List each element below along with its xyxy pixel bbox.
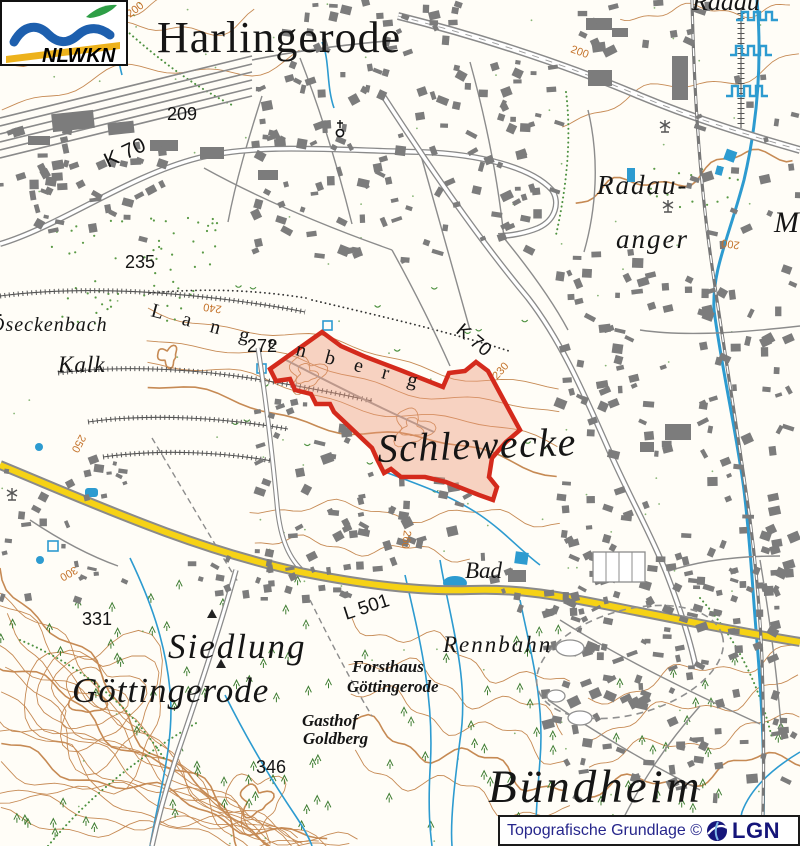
building	[584, 313, 596, 323]
building	[286, 407, 295, 415]
building	[542, 718, 555, 730]
topographic-map: Harlingerode Radau- anger Langenberg Öse…	[0, 0, 800, 846]
label-forsthaus-1: Forsthaus	[351, 657, 424, 676]
building	[513, 79, 521, 83]
building	[389, 557, 397, 567]
building	[608, 3, 619, 10]
building	[587, 429, 595, 436]
building	[391, 198, 399, 203]
building	[423, 239, 431, 247]
building	[638, 418, 647, 425]
label-kalk: Kalk	[57, 352, 105, 377]
label-harlingerode: Harlingerode	[157, 13, 401, 62]
building	[34, 204, 41, 213]
nlwkn-logo-text: NLWKN	[42, 45, 116, 64]
label-buendheim: Bündheim	[488, 761, 703, 813]
building	[65, 479, 75, 489]
building	[781, 264, 793, 275]
building	[770, 620, 781, 630]
building	[785, 569, 794, 578]
building	[442, 35, 450, 45]
building	[490, 62, 500, 71]
building	[261, 100, 273, 111]
building	[138, 236, 148, 243]
building	[440, 123, 448, 127]
building	[40, 519, 47, 527]
spot-height-209: 209	[167, 104, 197, 124]
building	[631, 289, 643, 295]
building	[624, 335, 634, 342]
building	[349, 530, 358, 538]
building	[562, 377, 572, 383]
building	[615, 293, 620, 298]
building	[562, 481, 571, 485]
building	[591, 251, 601, 257]
building	[746, 774, 758, 784]
building	[479, 89, 488, 97]
building	[730, 628, 740, 634]
building	[663, 304, 674, 313]
building	[654, 451, 659, 457]
building	[733, 618, 741, 625]
building	[306, 231, 317, 238]
building	[586, 496, 595, 503]
building	[337, 244, 350, 257]
building	[697, 577, 705, 585]
building	[365, 85, 371, 93]
building	[562, 505, 570, 513]
label-partial-m: M	[773, 206, 800, 239]
building	[642, 501, 650, 509]
building	[581, 616, 588, 623]
building	[573, 278, 583, 289]
building	[158, 146, 167, 156]
building	[724, 495, 732, 502]
building	[739, 527, 747, 534]
building	[431, 249, 443, 256]
building	[573, 256, 582, 260]
building	[726, 473, 732, 478]
building	[535, 113, 542, 118]
building	[739, 581, 746, 588]
building	[21, 522, 31, 527]
building	[563, 592, 569, 601]
building	[73, 595, 82, 604]
building	[63, 160, 70, 168]
building	[740, 740, 749, 744]
building	[733, 464, 744, 470]
building	[403, 49, 414, 57]
building	[616, 365, 624, 371]
building	[597, 401, 609, 413]
spot-height-272: 272	[247, 336, 277, 356]
building	[562, 680, 571, 688]
building	[255, 577, 261, 584]
building	[280, 225, 293, 236]
building	[348, 93, 361, 106]
building	[356, 561, 364, 569]
building	[344, 437, 351, 444]
building	[357, 528, 370, 537]
building	[415, 112, 425, 121]
building	[544, 590, 555, 597]
building	[314, 440, 326, 447]
building	[318, 585, 325, 592]
building	[782, 559, 795, 570]
contour-label-200-e: 200	[721, 236, 741, 250]
building	[510, 117, 516, 122]
building	[795, 192, 800, 198]
building	[663, 634, 672, 639]
building	[451, 7, 459, 15]
building	[263, 584, 272, 593]
building	[714, 728, 721, 734]
building	[614, 355, 624, 365]
parking-area	[593, 552, 645, 582]
building	[158, 180, 166, 189]
building	[684, 570, 693, 576]
building	[83, 469, 91, 477]
contour-label-300: 300	[58, 563, 80, 583]
building	[357, 178, 370, 189]
building	[774, 606, 779, 610]
label-schlewecke: Schlewecke	[377, 419, 578, 471]
building	[275, 215, 287, 225]
building	[634, 674, 642, 684]
spot-height-346: 346	[256, 757, 286, 777]
building	[775, 307, 781, 317]
building	[254, 238, 263, 247]
building	[788, 281, 797, 288]
building	[382, 68, 390, 77]
contour-label-240: 240	[203, 300, 223, 314]
building	[515, 149, 527, 160]
building	[752, 566, 761, 575]
building	[320, 452, 334, 465]
building	[88, 223, 98, 233]
building	[429, 20, 438, 26]
label-road-k70-east: K 70	[452, 320, 495, 361]
building	[31, 505, 41, 514]
building	[0, 593, 6, 602]
building	[614, 486, 626, 496]
building	[653, 0, 663, 6]
nlwkn-blue-wave	[14, 27, 110, 42]
building	[352, 247, 359, 253]
building	[631, 383, 638, 389]
building	[577, 585, 586, 592]
building	[787, 531, 800, 544]
building	[520, 123, 531, 132]
building	[263, 188, 271, 196]
building	[730, 595, 738, 603]
building	[506, 123, 517, 135]
building	[791, 112, 800, 118]
building	[675, 645, 685, 652]
building	[574, 298, 583, 305]
building	[273, 432, 280, 439]
building	[523, 245, 536, 256]
building	[106, 471, 111, 475]
building	[284, 74, 294, 83]
building	[452, 101, 461, 110]
building	[576, 360, 584, 368]
building	[314, 253, 325, 259]
label-radau-anger-2: anger	[616, 224, 689, 254]
label-oeseckenbach: Öseckenbach	[0, 313, 108, 336]
building	[740, 223, 753, 234]
building	[694, 124, 707, 132]
building	[124, 215, 131, 220]
building	[295, 524, 304, 531]
building	[761, 347, 768, 357]
building	[764, 586, 774, 596]
building	[586, 525, 593, 530]
building	[57, 183, 68, 190]
building	[623, 273, 632, 283]
building	[656, 556, 666, 562]
building	[567, 294, 574, 300]
building	[38, 153, 48, 157]
building	[340, 72, 345, 77]
building	[5, 538, 13, 543]
building	[423, 5, 430, 13]
building	[681, 556, 689, 566]
building	[515, 187, 521, 191]
building	[395, 145, 407, 156]
building	[436, 95, 449, 106]
building	[756, 582, 764, 588]
building	[588, 687, 602, 700]
building	[430, 91, 437, 100]
building	[254, 486, 267, 496]
building	[512, 67, 524, 79]
building	[118, 468, 128, 474]
building	[608, 398, 620, 409]
building	[306, 551, 318, 562]
building	[533, 209, 542, 218]
label-rennbahn: Rennbahn	[442, 632, 552, 657]
building	[336, 217, 348, 227]
building	[68, 162, 79, 170]
building	[602, 504, 613, 513]
building	[274, 399, 281, 405]
building	[303, 402, 307, 406]
building	[675, 552, 683, 560]
building	[284, 585, 293, 594]
building	[554, 120, 565, 127]
building	[51, 172, 63, 181]
building	[500, 190, 514, 203]
label-goettingerode: Göttingerode	[72, 671, 269, 710]
building	[742, 514, 754, 518]
building	[296, 138, 308, 149]
label-gasthof-2: Goldberg	[303, 729, 369, 748]
building	[685, 275, 694, 283]
building	[88, 454, 100, 465]
building	[768, 505, 781, 516]
building	[122, 481, 127, 486]
building	[62, 125, 73, 135]
building	[500, 86, 512, 98]
building	[112, 461, 117, 466]
spot-height-235: 235	[125, 252, 155, 272]
building	[766, 210, 773, 217]
building	[210, 562, 220, 570]
building	[647, 302, 656, 311]
building	[686, 672, 693, 680]
building	[405, 205, 413, 211]
building	[283, 181, 289, 187]
building	[29, 190, 36, 200]
building	[257, 85, 266, 92]
building	[318, 89, 326, 97]
building	[360, 214, 365, 223]
building	[732, 689, 740, 698]
building	[472, 185, 482, 195]
building	[121, 578, 129, 585]
building	[29, 180, 38, 190]
building	[76, 179, 86, 189]
building	[664, 627, 671, 632]
building	[700, 449, 708, 459]
building	[51, 159, 64, 170]
building	[305, 77, 317, 86]
map-canvas: Harlingerode Radau- anger Langenberg Öse…	[0, 0, 800, 846]
building	[662, 441, 672, 448]
building	[660, 364, 667, 370]
building	[730, 578, 739, 584]
label-radau-anger-1: Radau-	[596, 170, 688, 200]
building	[134, 191, 144, 199]
building	[598, 324, 611, 333]
building	[607, 449, 620, 460]
building	[198, 576, 204, 582]
building	[438, 490, 448, 499]
building	[762, 387, 771, 393]
building	[785, 385, 793, 394]
building	[688, 665, 695, 669]
building	[300, 484, 312, 496]
building	[478, 161, 485, 172]
building	[734, 645, 743, 653]
building	[444, 178, 456, 187]
building	[647, 565, 658, 572]
building	[732, 384, 737, 391]
building	[628, 374, 639, 383]
building	[746, 102, 753, 108]
building	[632, 258, 644, 268]
spot-height-331: 331	[82, 609, 112, 629]
building	[546, 86, 556, 92]
building	[242, 590, 250, 599]
building	[568, 388, 575, 396]
building	[790, 731, 798, 739]
building	[759, 174, 771, 185]
building	[343, 564, 351, 571]
building	[662, 283, 669, 291]
label-siedlung: Siedlung	[168, 627, 306, 666]
building	[731, 344, 741, 352]
attribution-text: Topografische Grundlage ©	[507, 822, 702, 840]
nlwkn-green-swoosh	[86, 5, 117, 18]
building	[448, 20, 458, 26]
building	[714, 762, 723, 770]
building	[15, 172, 26, 181]
building	[740, 432, 754, 445]
building	[642, 40, 649, 49]
building	[734, 75, 741, 84]
building	[259, 119, 265, 125]
building	[731, 167, 739, 174]
nlwkn-logo: NLWKN	[0, 0, 128, 66]
building	[685, 287, 692, 294]
building	[592, 644, 600, 651]
building	[333, 587, 341, 592]
building	[315, 181, 324, 191]
building	[367, 64, 373, 72]
building	[442, 224, 448, 231]
building	[513, 592, 521, 600]
building	[64, 520, 70, 528]
building	[373, 68, 383, 75]
building	[667, 716, 679, 727]
label-gasthof-1: Gasthof	[302, 711, 360, 730]
building	[603, 617, 613, 625]
lgn-logo-text: LGN	[732, 820, 780, 842]
building	[609, 543, 617, 552]
building	[322, 127, 327, 133]
building	[568, 554, 580, 562]
building	[215, 574, 224, 581]
building	[403, 501, 410, 510]
nlwkn-logo-graphic: NLWKN	[2, 2, 126, 64]
building	[744, 336, 751, 346]
building	[87, 566, 97, 571]
building	[288, 533, 298, 538]
building	[255, 442, 265, 449]
building	[719, 540, 727, 549]
building	[707, 426, 713, 434]
building	[115, 473, 123, 479]
building	[336, 166, 343, 176]
contour-label-200-ne: 200	[569, 44, 590, 62]
building	[253, 198, 263, 209]
building	[644, 431, 654, 440]
building	[676, 741, 685, 748]
building	[699, 341, 708, 350]
building	[603, 674, 613, 681]
building	[548, 64, 558, 70]
building	[775, 392, 783, 398]
building	[614, 328, 625, 334]
building	[776, 425, 784, 435]
building	[707, 547, 716, 557]
building	[612, 656, 624, 664]
building	[327, 176, 335, 186]
building	[766, 653, 779, 663]
building	[578, 31, 587, 39]
building	[768, 446, 776, 456]
building	[561, 530, 568, 538]
building	[122, 197, 135, 207]
building	[570, 616, 581, 623]
label-partial-radau: Radau	[691, 0, 760, 16]
building	[416, 86, 427, 97]
building	[707, 477, 717, 486]
building	[578, 11, 588, 16]
building	[145, 184, 157, 195]
